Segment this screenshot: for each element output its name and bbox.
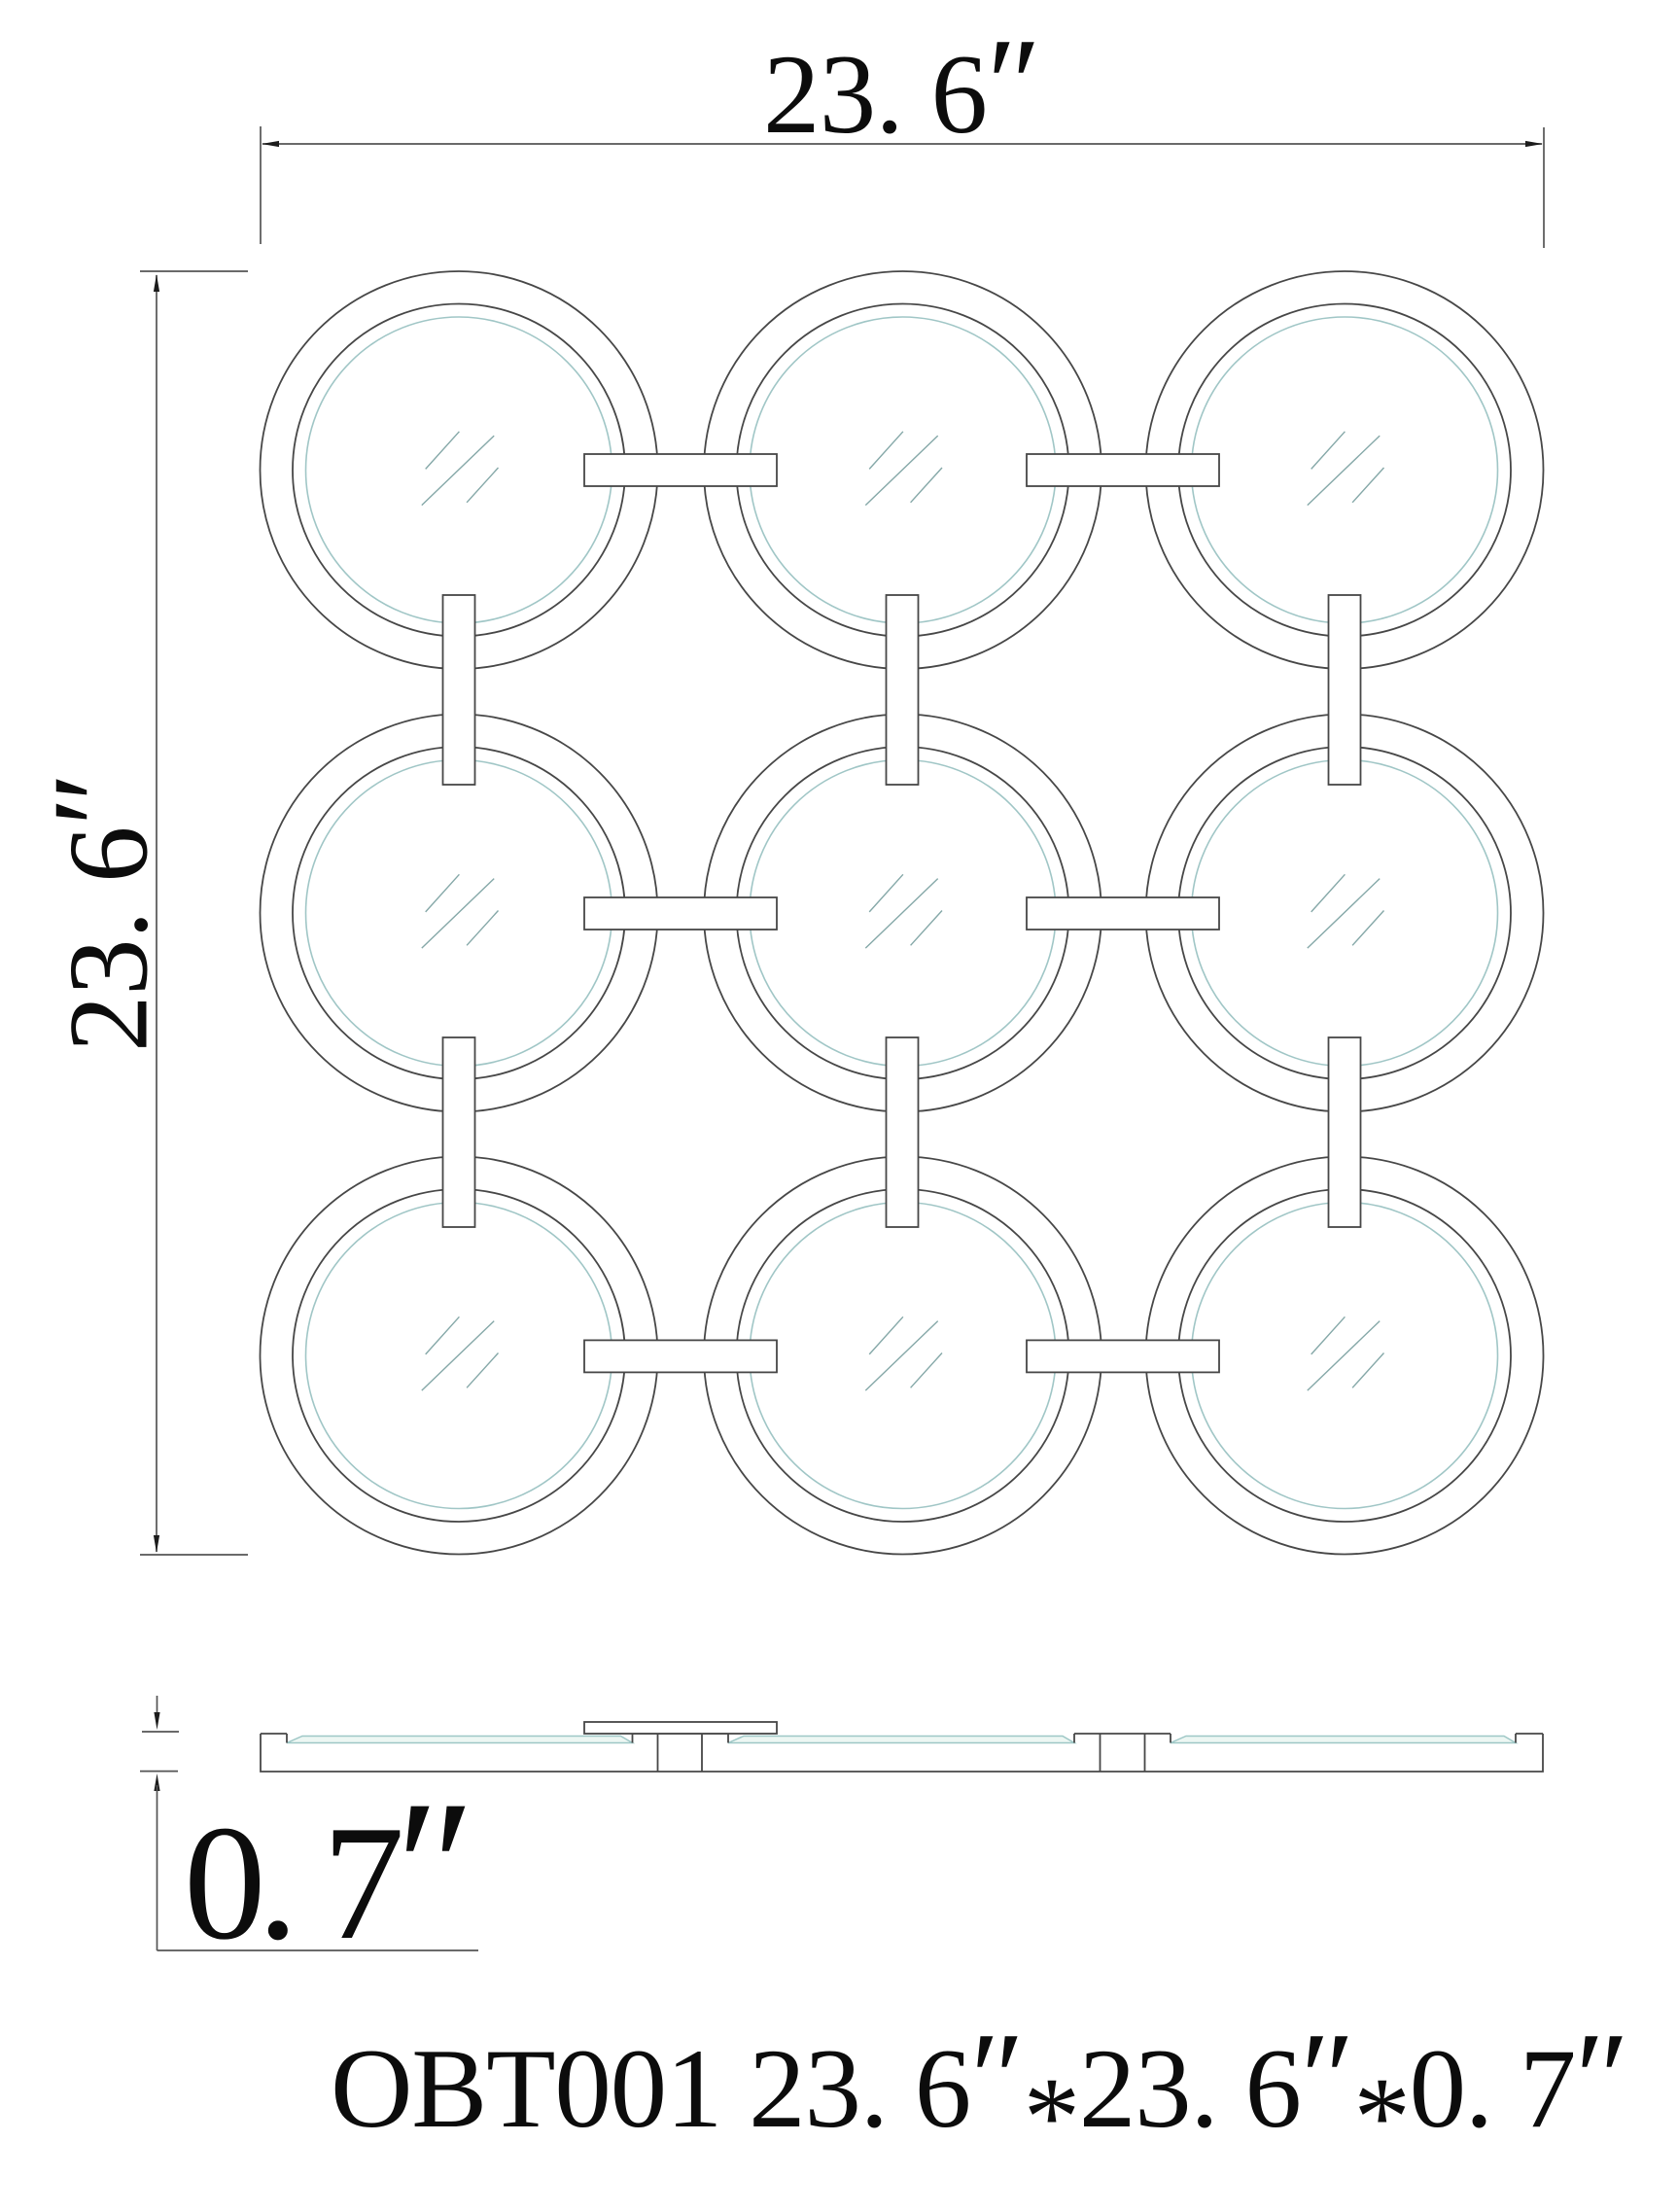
svg-text:23. 6″: 23. 6″ [763, 12, 1041, 158]
svg-text:0. 7″: 0. 7″ [184, 1762, 475, 1974]
svg-text:23. 6″: 23. 6″ [26, 772, 172, 1052]
